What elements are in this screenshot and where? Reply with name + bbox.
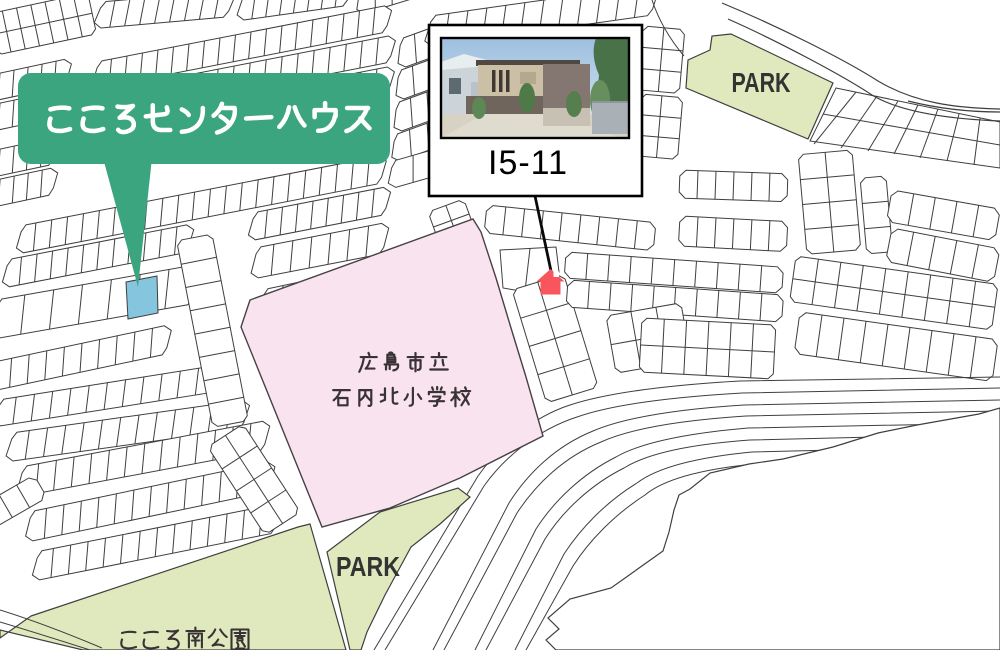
svg-text:PARK: PARK [732,67,791,98]
svg-text:PARK: PARK [336,551,400,582]
svg-text:I5-11: I5-11 [488,144,568,182]
